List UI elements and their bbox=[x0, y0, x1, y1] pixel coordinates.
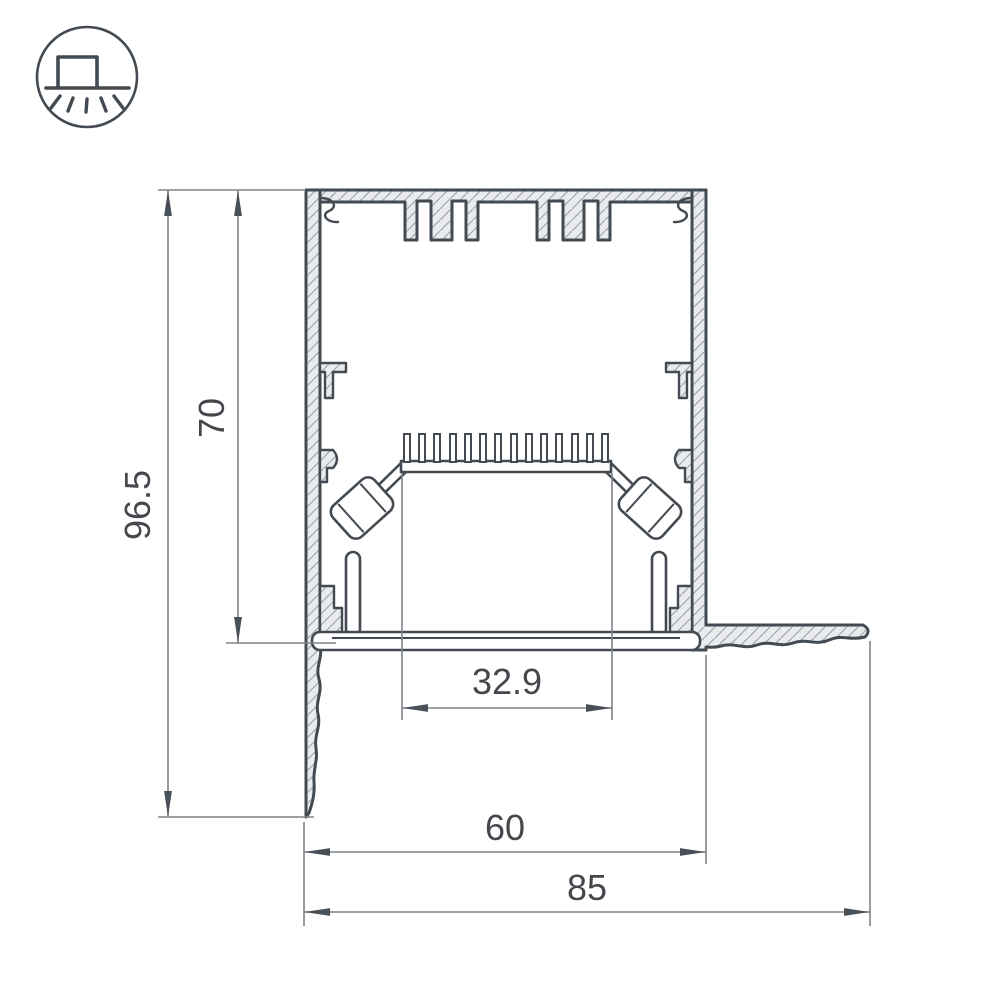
left-clip-anchor bbox=[320, 450, 337, 482]
dim-label-60: 60 bbox=[485, 807, 525, 848]
recessed-ceiling-profile-icon bbox=[37, 27, 137, 127]
heatsink-fins bbox=[404, 434, 608, 462]
right-lower-step bbox=[670, 586, 692, 634]
dim-label-70: 70 bbox=[191, 398, 232, 438]
left-wall-plaster-wing bbox=[306, 190, 321, 817]
drawing-page: 96.5 70 32.9 60 85 bbox=[0, 0, 1000, 1000]
heatsink bbox=[352, 434, 660, 520]
diffuser-cover bbox=[312, 632, 700, 650]
heatsink-base-plate bbox=[401, 461, 611, 472]
diffuser-tray bbox=[312, 552, 700, 650]
left-lower-step bbox=[320, 586, 342, 634]
dimension-height-total: 96.5 bbox=[117, 190, 314, 817]
dim-label-32-9: 32.9 bbox=[472, 661, 542, 702]
dimension-width-total: 85 bbox=[304, 641, 870, 926]
left-mid-hook bbox=[320, 363, 346, 398]
right-mid-hook bbox=[666, 363, 692, 398]
profile-cross-section-drawing: 96.5 70 32.9 60 85 bbox=[0, 0, 1000, 1000]
tray-left-lip bbox=[346, 552, 360, 636]
right-wall-plaster-flange bbox=[692, 190, 868, 650]
top-wall bbox=[306, 190, 706, 240]
dim-label-85: 85 bbox=[567, 867, 607, 908]
tray-right-lip bbox=[652, 552, 666, 636]
dimension-width-inner: 32.9 bbox=[402, 473, 612, 720]
dim-label-96-5: 96.5 bbox=[117, 470, 158, 540]
right-clip-anchor bbox=[675, 450, 692, 482]
